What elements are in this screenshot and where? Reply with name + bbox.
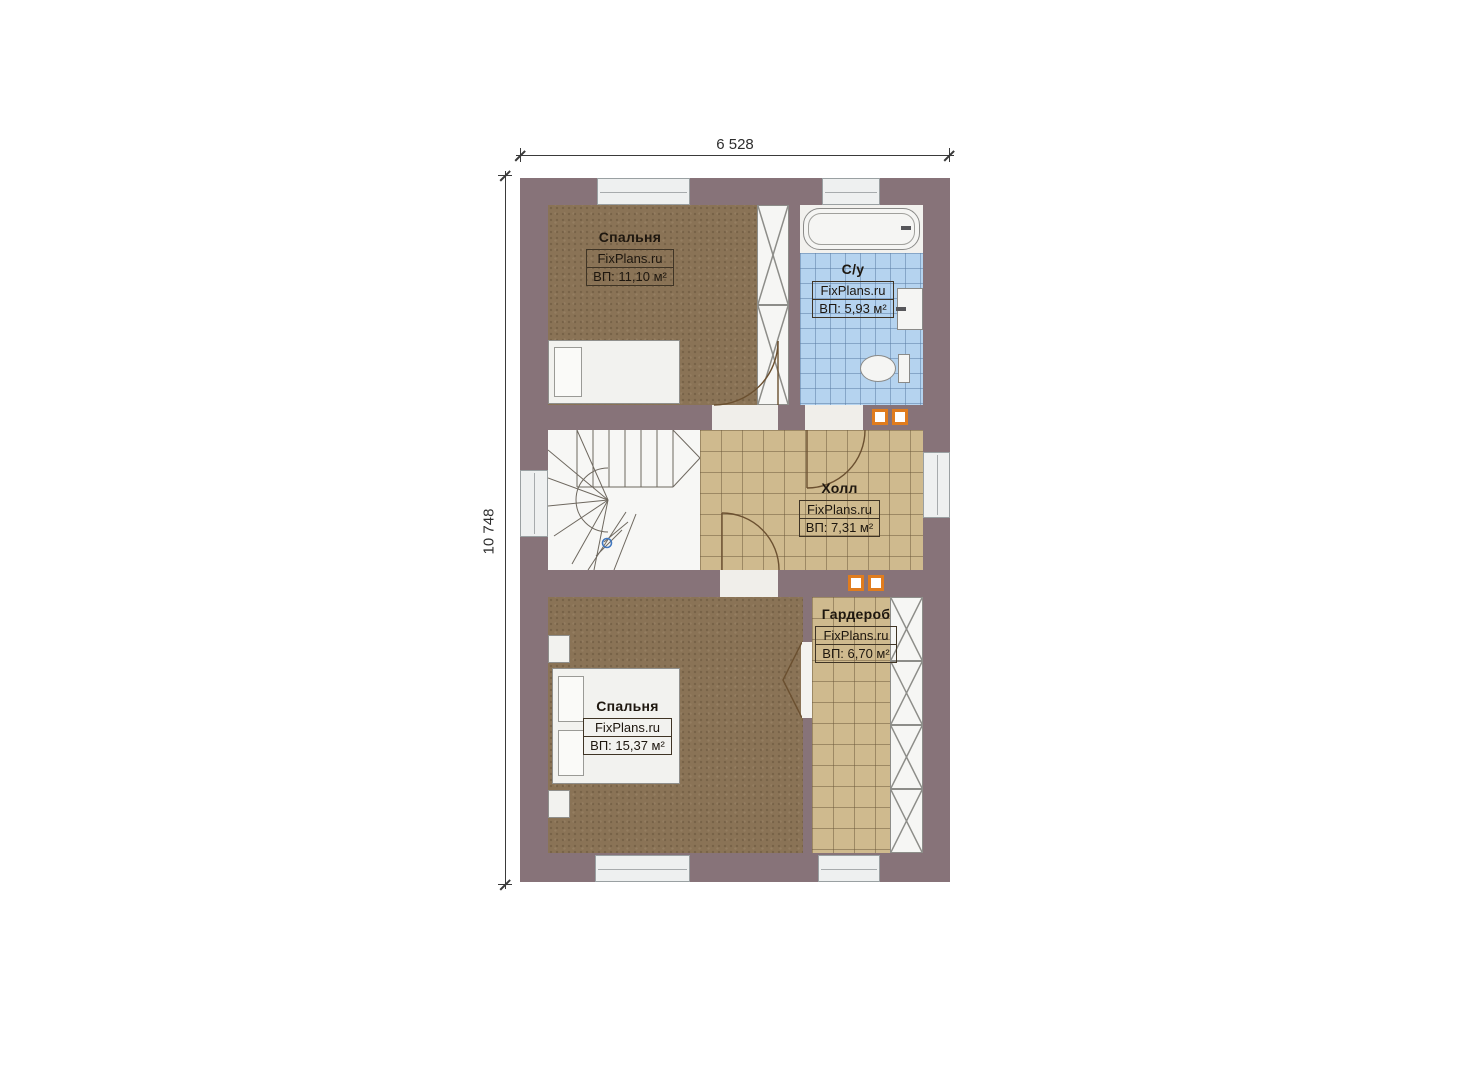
door-opening	[805, 405, 863, 430]
room-name: Холл	[782, 480, 897, 496]
vent-marker	[868, 575, 884, 591]
window	[818, 855, 880, 882]
nightstand	[548, 635, 570, 663]
door-opening	[712, 405, 778, 430]
closet-cabinet-icon	[890, 661, 923, 725]
vent-marker	[892, 409, 908, 425]
vent-marker	[848, 575, 864, 591]
room-name: Спальня	[560, 698, 695, 714]
toilet-tank	[898, 354, 910, 383]
room-name: Гардероб	[802, 606, 910, 622]
brand-watermark: FixPlans.ru	[800, 501, 879, 518]
nightstand	[548, 790, 570, 818]
bed-single	[548, 340, 680, 404]
window	[595, 855, 690, 882]
room-label-bedroom-bottom: Спальня FixPlans.ru ВП: 15,37 м²	[560, 698, 695, 755]
room-name: Спальня	[560, 229, 700, 245]
room-label-wardrobe: Гардероб FixPlans.ru ВП: 6,70 м²	[802, 606, 910, 663]
closet-cabinet-icon	[757, 305, 789, 405]
room-area: ВП: 11,10 м²	[587, 267, 673, 285]
room-area: ВП: 15,37 м²	[584, 736, 671, 754]
window	[520, 470, 548, 537]
dimension-line	[505, 171, 506, 889]
room-area: ВП: 6,70 м²	[816, 644, 895, 662]
floor-plan: Спальня FixPlans.ru ВП: 11,10 м² С/у Fix…	[520, 178, 950, 882]
brand-watermark: FixPlans.ru	[587, 250, 673, 267]
door-opening	[720, 570, 778, 597]
toilet	[860, 355, 896, 382]
window	[822, 178, 880, 205]
closet-cabinet-icon	[890, 725, 923, 789]
closet-cabinet-icon	[757, 205, 789, 305]
floorplan-canvas: 6 528 10 748	[0, 0, 1474, 1080]
room-label-bedroom-top: Спальня FixPlans.ru ВП: 11,10 м²	[560, 229, 700, 286]
brand-watermark: FixPlans.ru	[584, 719, 671, 736]
dimension-width-label: 6 528	[520, 136, 950, 153]
faucet-icon	[901, 226, 911, 230]
brand-watermark: FixPlans.ru	[813, 282, 892, 299]
closet-top	[757, 205, 789, 405]
room-label-bathroom: С/у FixPlans.ru ВП: 5,93 м²	[798, 261, 908, 318]
brand-watermark: FixPlans.ru	[816, 627, 895, 644]
room-label-hall: Холл FixPlans.ru ВП: 7,31 м²	[782, 480, 897, 537]
window	[597, 178, 690, 205]
bathtub	[803, 208, 920, 250]
dimension-width: 6 528	[520, 136, 950, 170]
room-name: С/у	[798, 261, 908, 277]
window	[923, 452, 950, 518]
bathtub-rim	[808, 213, 915, 245]
dimension-height: 10 748	[486, 175, 520, 885]
dimension-height-label: 10 748	[481, 502, 498, 562]
vent-marker	[872, 409, 888, 425]
pillow	[554, 347, 582, 397]
dimension-line	[516, 155, 954, 156]
closet-cabinet-icon	[890, 789, 923, 853]
room-area: ВП: 5,93 м²	[813, 299, 892, 317]
stairwell	[548, 430, 700, 570]
room-area: ВП: 7,31 м²	[800, 518, 879, 536]
